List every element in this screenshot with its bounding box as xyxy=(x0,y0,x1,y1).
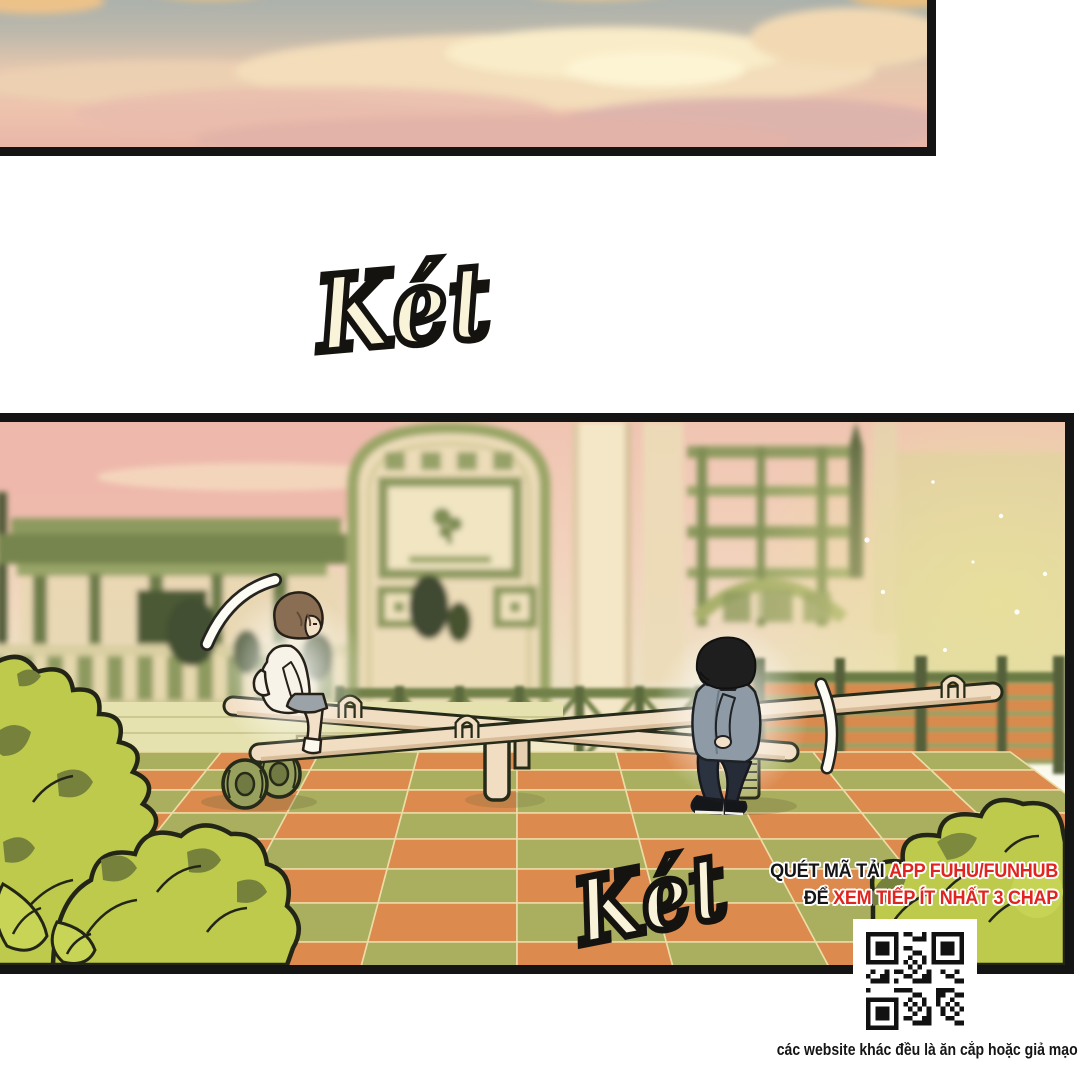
promo-line-1: QUÉT MÃ TẢIAPP FUHU/FUNHUB xyxy=(770,858,1058,885)
panel-sunset-sky xyxy=(0,0,936,156)
promo-line-2: ĐỂXEM TIẾP ÍT NHẤT 3 CHAP xyxy=(770,885,1058,912)
sunset-sky-art xyxy=(0,0,927,147)
promo-line-1-red: APP FUHU/FUNHUB xyxy=(889,861,1058,882)
qr-code-icon xyxy=(866,932,964,1030)
qr-code xyxy=(853,919,977,1041)
sfx-ket-bottom: Két xyxy=(568,841,734,958)
promo-line-2-black: ĐỂ xyxy=(804,888,829,909)
footer-warning: các website khác đều là ăn cắp hoặc giả … xyxy=(777,1041,1058,1060)
app-promo: QUÉT MÃ TẢIAPP FUHU/FUNHUB ĐỂXEM TIẾP ÍT… xyxy=(770,858,1058,912)
promo-line-1-black: QUÉT MÃ TẢI xyxy=(770,861,884,882)
sfx-ket-top: Két xyxy=(312,249,495,368)
promo-line-2-red: XEM TIẾP ÍT NHẤT 3 CHAP xyxy=(833,888,1058,909)
comic-page: Két xyxy=(0,0,1080,1080)
